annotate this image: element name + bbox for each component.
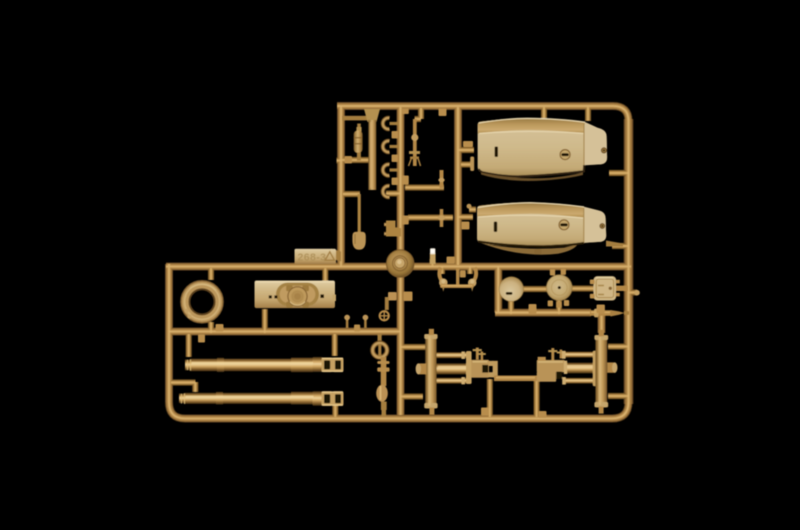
- svg-text:268-3: 268-3: [298, 252, 327, 264]
